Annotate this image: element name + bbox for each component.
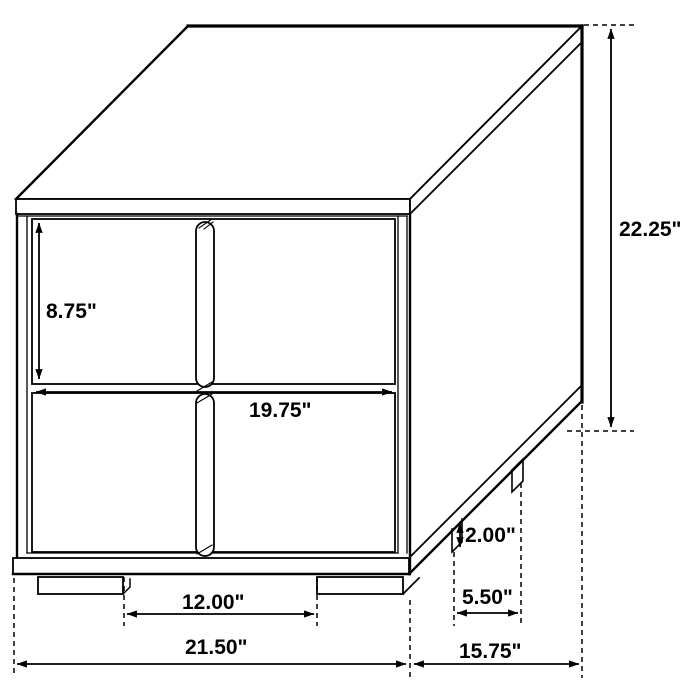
dim-label-drawer-width: 19.75": [249, 399, 312, 422]
dim-front-leg-spacing: 12.00": [124, 577, 317, 626]
dim-overall-height: 22.25": [567, 25, 682, 431]
top-drawer-handle: [196, 222, 214, 387]
dim-label-leg-height: 2.00": [465, 524, 516, 547]
drawers: [32, 219, 395, 556]
dim-label-drawer-height: 8.75": [46, 300, 97, 323]
side-plinth-bottom-edge: [409, 401, 582, 574]
top-panel-front-edge: [16, 199, 410, 214]
top-panel: [16, 26, 582, 214]
dim-leg-height: 2.00": [460, 523, 516, 547]
dim-label-overall-depth: 15.75": [459, 640, 522, 663]
base-plinth: [13, 558, 409, 574]
dim-label-overall-width: 21.50": [185, 636, 248, 659]
dim-side-leg-spacing: 5.50": [454, 483, 521, 626]
drawing-canvas: 22.25" 8.75" 19.75" 12.00" 21.50" 15.75": [0, 0, 700, 700]
bottom-drawer-handle: [196, 394, 214, 556]
front-right-leg-side: [403, 578, 419, 594]
nightstand-technical-drawing: 22.25" 8.75" 19.75" 12.00" 21.50" 15.75": [0, 0, 700, 700]
plinth-front: [13, 558, 409, 574]
dim-label-overall-height: 22.25": [619, 218, 682, 241]
furniture-outline: [13, 26, 582, 594]
dim-label-front-leg-spacing: 12.00": [182, 591, 245, 614]
front-left-leg: [38, 577, 123, 594]
dim-label-side-leg-spacing: 5.50": [462, 586, 513, 609]
front-right-leg: [317, 577, 403, 594]
